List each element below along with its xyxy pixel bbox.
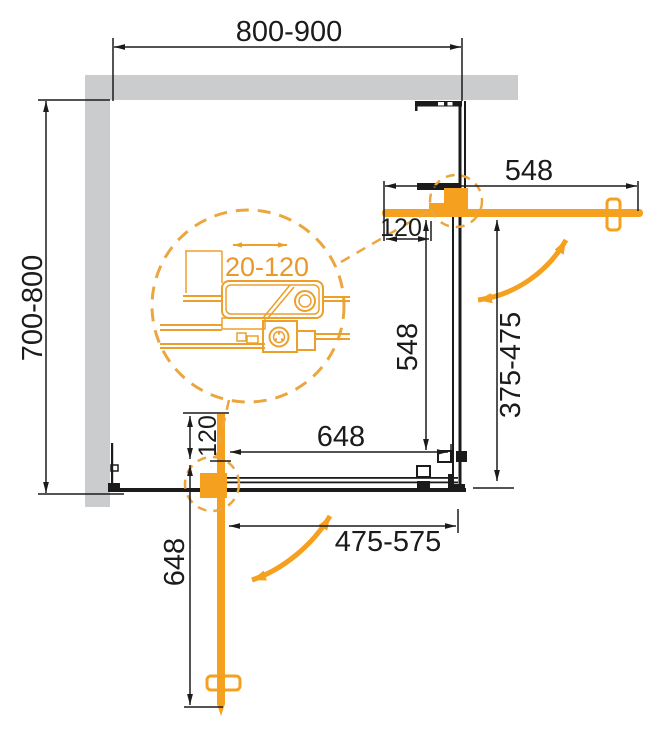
- clamp-piece: [247, 336, 258, 343]
- detail-bar: [222, 318, 265, 329]
- technical-drawing-svg: 20-120 800-900 700-800 548 120 548 375-4…: [0, 0, 661, 732]
- left-wall: [85, 75, 110, 507]
- carriage-inner: [226, 285, 319, 314]
- dim-right-opening: 375-475: [495, 312, 527, 418]
- right-rail: [459, 101, 462, 492]
- glass-clamp: [417, 466, 430, 477]
- dimension-annotations: 800-900 700-800 548 120 548 375-475 648 …: [17, 16, 638, 707]
- glass-clamp: [417, 481, 430, 492]
- right-glass-panel: [452, 215, 454, 488]
- detail-extension-lines: [185, 251, 222, 293]
- dim-right-panel-height: 548: [392, 323, 424, 371]
- clamp-piece: [237, 333, 246, 341]
- right-rail-lines: [315, 334, 350, 339]
- bolt-dot: [281, 338, 283, 340]
- dim-right-door-inset: 120: [380, 214, 422, 242]
- profile-cutout: [448, 102, 453, 106]
- corner-elbow: [451, 474, 465, 487]
- lower-door-roller-block: [200, 473, 227, 498]
- dim-top-width: 800-900: [236, 16, 342, 48]
- top-wall: [85, 75, 518, 100]
- upper-roller-wheel: [295, 291, 315, 311]
- dim-bottom-door-length: 648: [159, 538, 191, 586]
- dim-bottom-panel-width: 648: [317, 421, 365, 453]
- profile-cutout: [438, 102, 444, 106]
- upper-door-roller-block: [429, 188, 468, 217]
- lower-roller-wheel: [270, 328, 289, 347]
- left-wall-profile-foot: [108, 483, 120, 488]
- dim-right-door-length: 548: [505, 155, 553, 187]
- carriage-diagonal: [263, 285, 294, 318]
- dim-bottom-door-inset: 120: [194, 415, 222, 457]
- bottom-rail: [108, 488, 466, 492]
- upper-roller-hub: [299, 295, 311, 307]
- lower-door-tip: [217, 704, 225, 716]
- glass-clamp: [456, 451, 467, 462]
- upper-rail-lines: [183, 296, 350, 301]
- drawing-canvas: 20-120 800-900 700-800 548 120 548 375-4…: [0, 0, 661, 732]
- upper-door-swing-arrow: [478, 240, 566, 300]
- bolt-dot: [275, 338, 277, 340]
- dim-left-depth: 700-800: [17, 255, 49, 361]
- top-wall-profile-lip: [415, 101, 418, 111]
- frame-structure: [108, 101, 467, 492]
- dim-bottom-opening: 475-575: [335, 526, 441, 558]
- bolt-dot: [278, 332, 280, 334]
- detail-circle: [152, 210, 344, 402]
- dim-roller-adjustment: 20-120: [225, 252, 309, 282]
- roller-mechanism-detail: 20-120: [160, 245, 350, 352]
- detail-end-block: [297, 331, 315, 350]
